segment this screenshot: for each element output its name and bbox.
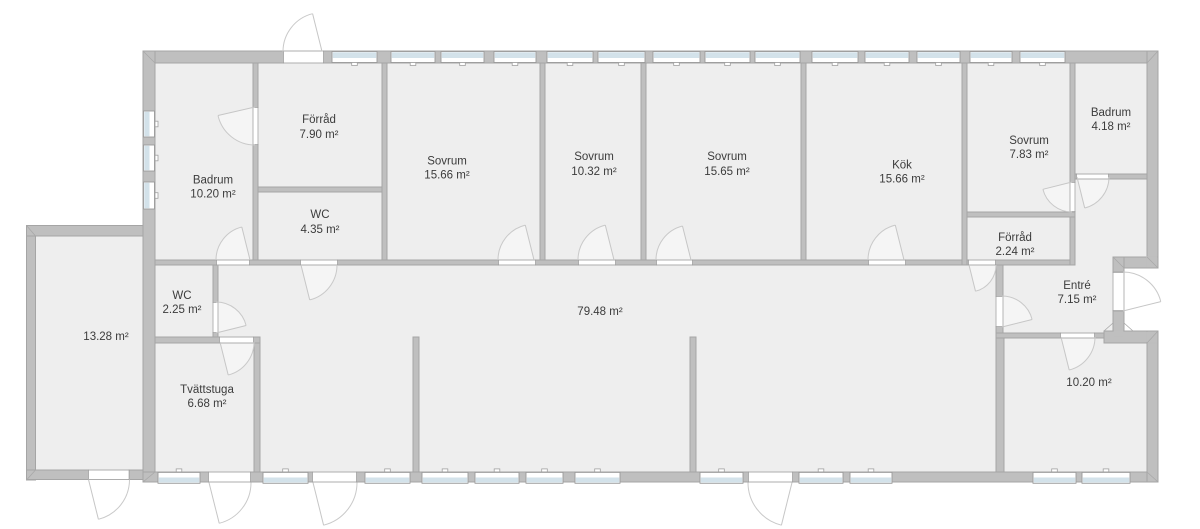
svg-text:Badrum: Badrum	[1091, 107, 1131, 119]
svg-text:WC: WC	[310, 209, 329, 221]
svg-text:2.25 m²: 2.25 m²	[163, 304, 202, 316]
svg-text:79.48 m²: 79.48 m²	[577, 306, 623, 318]
svg-text:15.65 m²: 15.65 m²	[704, 166, 750, 178]
svg-text:Förråd: Förråd	[998, 232, 1032, 244]
svg-text:Entré: Entré	[1063, 280, 1091, 292]
svg-text:Kök: Kök	[892, 160, 912, 172]
svg-text:7.15 m²: 7.15 m²	[1058, 294, 1097, 306]
svg-text:Sovrum: Sovrum	[707, 151, 747, 163]
svg-text:13.28 m²: 13.28 m²	[83, 331, 129, 343]
svg-text:4.18 m²: 4.18 m²	[1092, 121, 1131, 133]
svg-text:WC: WC	[172, 290, 191, 302]
svg-text:Badrum: Badrum	[193, 175, 233, 187]
svg-text:Tvättstuga: Tvättstuga	[180, 384, 234, 396]
svg-text:15.66 m²: 15.66 m²	[424, 170, 470, 182]
svg-text:6.68 m²: 6.68 m²	[188, 398, 227, 410]
svg-text:Sovrum: Sovrum	[427, 156, 467, 168]
svg-text:Sovrum: Sovrum	[574, 151, 614, 163]
svg-text:7.83 m²: 7.83 m²	[1010, 149, 1049, 161]
svg-text:10.20 m²: 10.20 m²	[190, 189, 236, 201]
svg-text:15.66 m²: 15.66 m²	[879, 174, 925, 186]
svg-text:4.35 m²: 4.35 m²	[301, 224, 340, 236]
svg-text:10.20 m²: 10.20 m²	[1066, 377, 1112, 389]
svg-text:Förråd: Förråd	[302, 114, 336, 126]
svg-text:10.32 m²: 10.32 m²	[571, 166, 617, 178]
svg-text:7.90 m²: 7.90 m²	[300, 129, 339, 141]
svg-text:Sovrum: Sovrum	[1009, 135, 1049, 147]
svg-text:2.24 m²: 2.24 m²	[996, 246, 1035, 258]
